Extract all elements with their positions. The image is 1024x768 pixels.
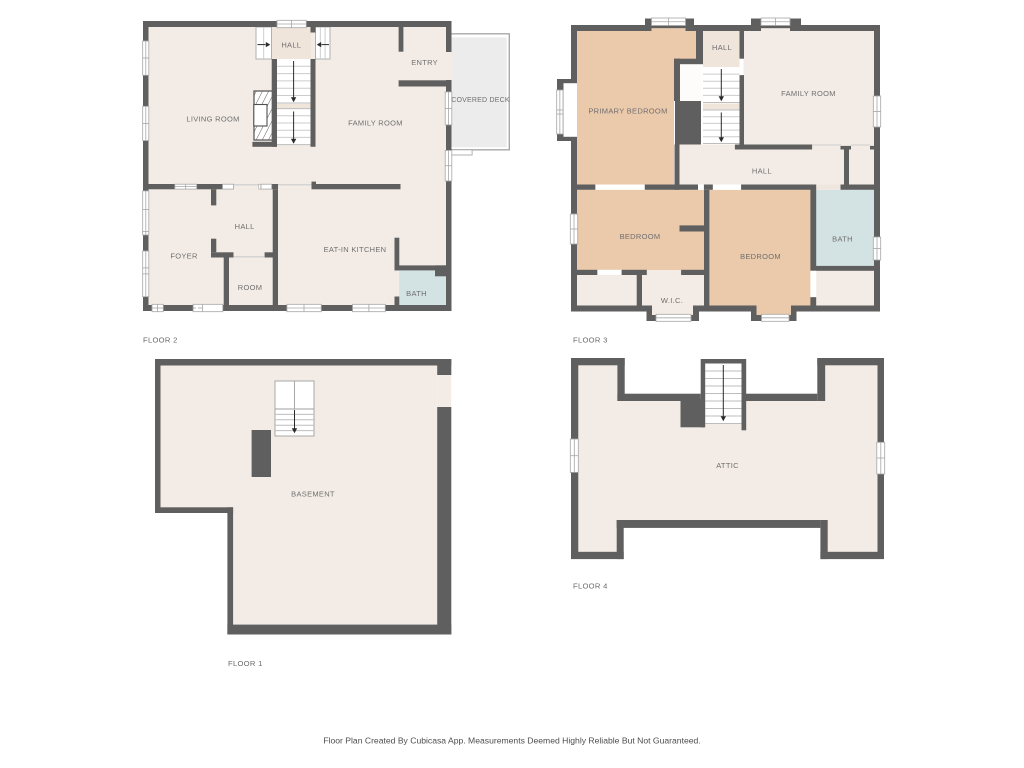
svg-text:ENTRY: ENTRY bbox=[411, 58, 438, 67]
svg-text:EAT-IN KITCHEN: EAT-IN KITCHEN bbox=[324, 245, 387, 254]
svg-text:HALL: HALL bbox=[752, 166, 772, 175]
svg-text:HALL: HALL bbox=[235, 222, 255, 231]
svg-text:HALL: HALL bbox=[712, 43, 732, 52]
svg-text:ATTIC: ATTIC bbox=[716, 461, 739, 470]
svg-text:BATH: BATH bbox=[832, 234, 853, 243]
svg-text:W.I.C.: W.I.C. bbox=[661, 296, 683, 305]
svg-text:FLOOR 2: FLOOR 2 bbox=[143, 336, 178, 345]
svg-text:ROOM: ROOM bbox=[238, 283, 263, 292]
svg-text:FOYER: FOYER bbox=[170, 251, 198, 260]
svg-text:BATH: BATH bbox=[406, 289, 427, 298]
svg-text:PRIMARY BEDROOM: PRIMARY BEDROOM bbox=[588, 106, 667, 115]
svg-text:BEDROOM: BEDROOM bbox=[620, 232, 661, 241]
svg-text:BASEMENT: BASEMENT bbox=[291, 489, 335, 498]
svg-text:FLOOR 4: FLOOR 4 bbox=[573, 581, 608, 590]
svg-text:HALL: HALL bbox=[281, 41, 301, 50]
svg-text:BEDROOM: BEDROOM bbox=[740, 252, 781, 261]
svg-text:Floor Plan Created By Cubicasa: Floor Plan Created By Cubicasa App. Meas… bbox=[323, 736, 700, 746]
svg-text:FAMILY ROOM: FAMILY ROOM bbox=[781, 89, 836, 98]
svg-text:LIVING ROOM: LIVING ROOM bbox=[186, 114, 239, 123]
svg-text:FLOOR 3: FLOOR 3 bbox=[573, 336, 608, 345]
svg-text:COVERED DECK: COVERED DECK bbox=[451, 97, 510, 104]
svg-text:FAMILY ROOM: FAMILY ROOM bbox=[348, 118, 403, 127]
svg-text:FLOOR 1: FLOOR 1 bbox=[228, 659, 263, 668]
